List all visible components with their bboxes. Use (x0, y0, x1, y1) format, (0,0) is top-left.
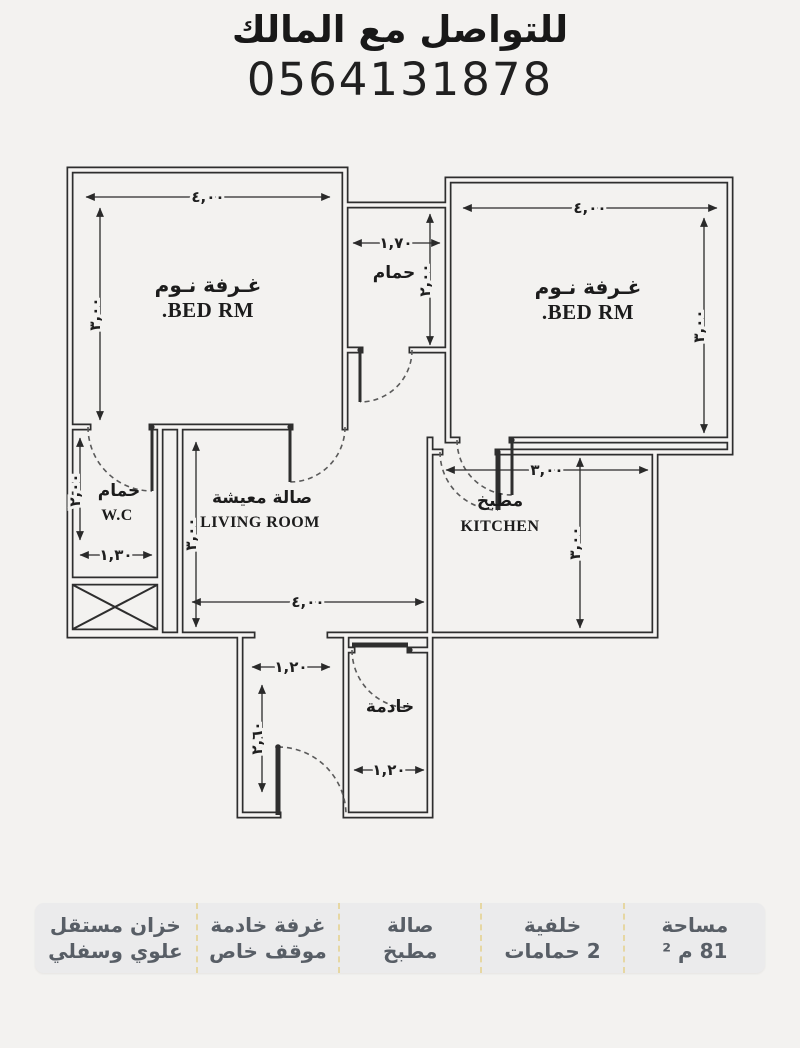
svg-text:١,٣٠: ١,٣٠ (99, 546, 132, 564)
dim-kitchen-height: ٣,٠٠ (566, 458, 584, 628)
dim-bathroom-width: ١,٧٠ (353, 234, 440, 252)
feature-parking-value: موقف خاص (200, 938, 336, 964)
feature-tank-value: علوي وسفلي (37, 938, 194, 964)
kitchen-label-ar: مطبخ (477, 491, 523, 511)
svg-text:٢,٠٠: ٢,٠٠ (416, 263, 434, 296)
feature-hall-kitchen: صالة مطبخ (340, 903, 482, 973)
svg-text:١,٢٠: ١,٢٠ (372, 761, 405, 779)
feature-area: مساحة 81 م ² (625, 903, 765, 973)
header: للتواصل مع المالك 0564131878 (0, 8, 800, 106)
dim-hall-width: ١,٢٠ (252, 658, 330, 676)
bedroom-right-label-ar: غـرفة نـوم (535, 275, 642, 299)
bathroom-label: حمام (373, 263, 416, 283)
dim-wc-width: ١,٣٠ (80, 546, 152, 564)
door-bedroom-right (457, 437, 515, 495)
shaft-x-icon (73, 585, 157, 629)
wc-label-en: W.C (101, 507, 133, 524)
svg-text:١,٢٠: ١,٢٠ (274, 658, 307, 676)
svg-text:٤,٠٠: ٤,٠٠ (291, 593, 324, 611)
living-label-en: LIVING ROOM (200, 514, 320, 531)
feature-rear-title: خلفية (484, 912, 620, 938)
dim-bed-left-height: ٣,٠٠ (86, 208, 104, 420)
svg-text:٢,٠٠: ٢,٠٠ (66, 473, 84, 506)
door-bathroom (357, 347, 412, 402)
dim-bed-right-height: ٣,٠٠ (690, 218, 708, 433)
bedroom-right-label-en: BED RM. (542, 300, 634, 324)
feature-area-value: 81 م ² (627, 938, 763, 964)
door-bedroom-left (287, 424, 345, 482)
feature-kitchen-value: مطبخ (342, 938, 478, 964)
svg-text:٤,٠٠: ٤,٠٠ (191, 188, 224, 206)
svg-text:٣,٠٠: ٣,٠٠ (566, 526, 584, 559)
door-entry (275, 744, 346, 815)
svg-text:٤,٠٠: ٤,٠٠ (573, 199, 606, 217)
dim-maid-width: ١,٢٠ (354, 761, 424, 779)
dim-bathroom-height: ٢,٠٠ (416, 214, 434, 345)
bedroom-left-label-ar: غـرفة نـوم (155, 273, 262, 297)
feature-maid-title: غرفة خادمة (200, 912, 336, 938)
svg-text:٣,٠٠: ٣,٠٠ (530, 461, 563, 479)
svg-text:٣,٠٠: ٣,٠٠ (86, 297, 104, 330)
feature-maid-parking: غرفة خادمة موقف خاص (198, 903, 340, 973)
feature-rear-value: 2 حمامات (484, 938, 620, 964)
svg-text:٢,٦٠: ٢,٦٠ (248, 721, 266, 754)
contact-text: للتواصل مع المالك (0, 8, 800, 51)
dim-living-width: ٤,٠٠ (192, 593, 424, 611)
living-label-ar: صالة معيشة (212, 488, 312, 508)
kitchen-label-en: KITCHEN (460, 518, 539, 535)
feature-tank: خزان مستقل علوي وسفلي (35, 903, 198, 973)
svg-text:١,٧٠: ١,٧٠ (379, 234, 412, 252)
feature-strip: مساحة 81 م ² خلفية 2 حمامات صالة مطبخ غر… (35, 903, 765, 973)
maid-label: خادمة (366, 697, 414, 717)
feature-hall-title: صالة (342, 912, 478, 938)
dim-living-height: ٣,٠٠ (182, 442, 200, 627)
page: { "header": { "contact_line": "للتواصل م… (0, 0, 800, 1048)
feature-rear: خلفية 2 حمامات (482, 903, 624, 973)
svg-text:٣,٠٠: ٣,٠٠ (690, 309, 708, 342)
svg-text:٣,٠٠: ٣,٠٠ (182, 517, 200, 550)
feature-area-title: مساحة (627, 912, 763, 938)
dim-kitchen-width: ٣,٠٠ (446, 461, 648, 479)
dim-hall-height: ٢,٦٠ (248, 685, 266, 792)
dim-bed-left-width: ٤,٠٠ (86, 188, 330, 206)
dim-bed-right-width: ٤,٠٠ (463, 199, 717, 217)
phone-number: 0564131878 (0, 53, 800, 106)
floor-plan: ٤,٠٠ ٣,٠٠ ٤,٠٠ ٣,٠٠ ١,٧٠ ٢,٠٠ ١,٣٠ ٢,٠٠ (0, 140, 800, 900)
bedroom-left-label-en: BED RM. (162, 298, 254, 322)
feature-tank-title: خزان مستقل (37, 912, 194, 938)
wc-label-ar: حمام (98, 481, 141, 501)
